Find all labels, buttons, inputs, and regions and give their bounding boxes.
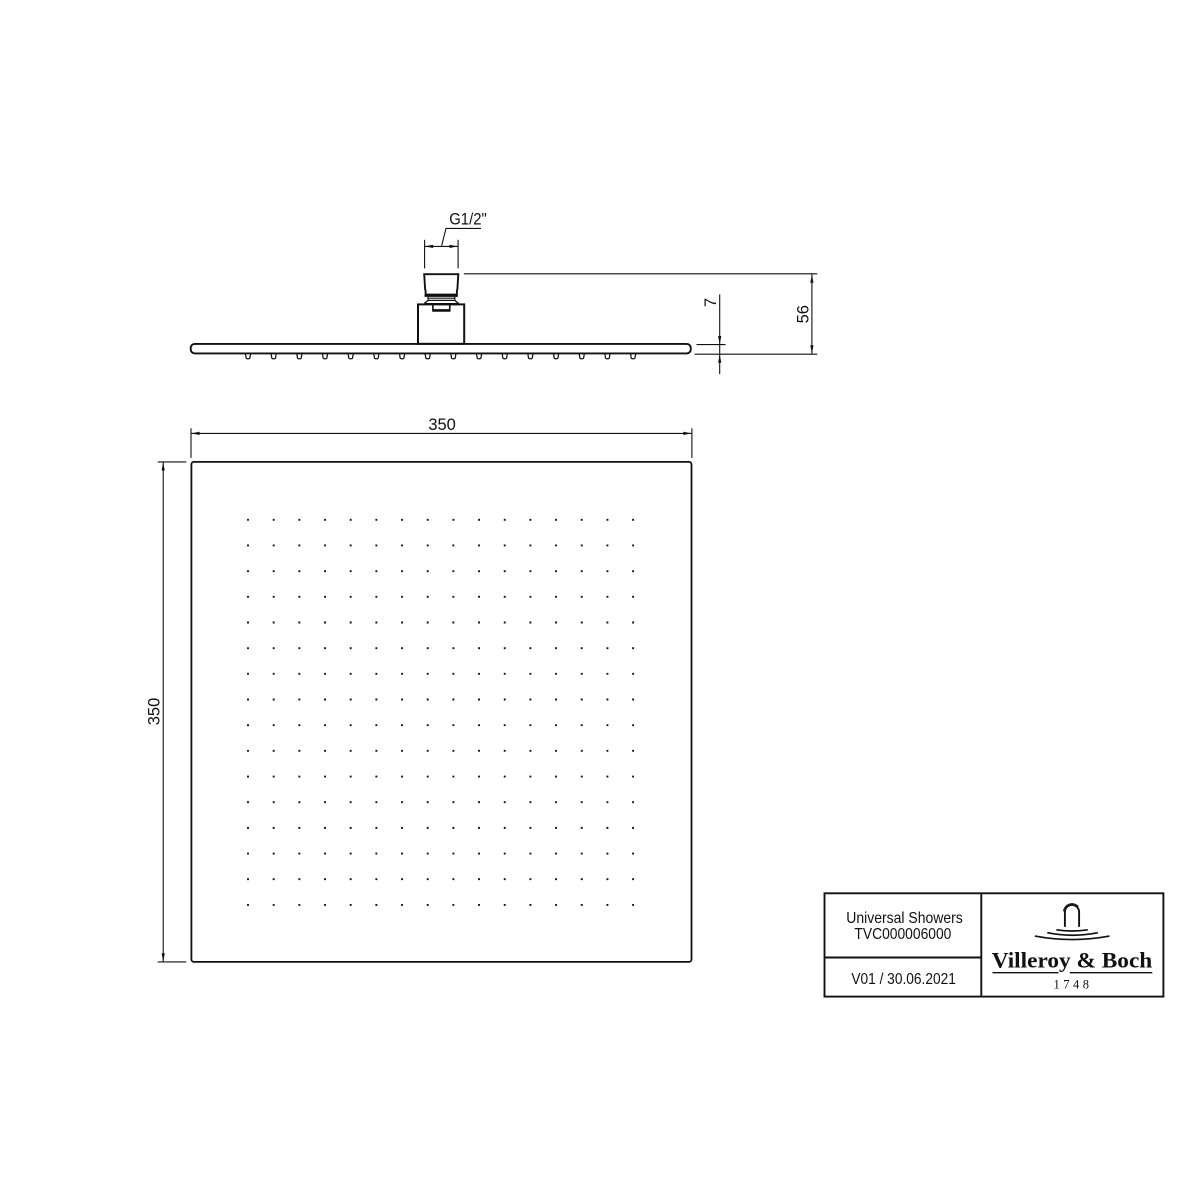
svg-text:350: 350: [146, 698, 164, 726]
svg-text:1748: 1748: [1054, 977, 1093, 991]
svg-text:56: 56: [795, 305, 813, 323]
svg-text:G1/2": G1/2": [449, 211, 487, 229]
svg-text:TVC000006000: TVC000006000: [854, 926, 951, 943]
svg-text:Universal Showers: Universal Showers: [846, 910, 963, 927]
svg-text:350: 350: [428, 416, 456, 434]
svg-text:Villeroy & Boch: Villeroy & Boch: [992, 948, 1153, 973]
svg-text:7: 7: [702, 298, 720, 307]
svg-text:V01 / 30.06.2021: V01 / 30.06.2021: [851, 971, 956, 988]
